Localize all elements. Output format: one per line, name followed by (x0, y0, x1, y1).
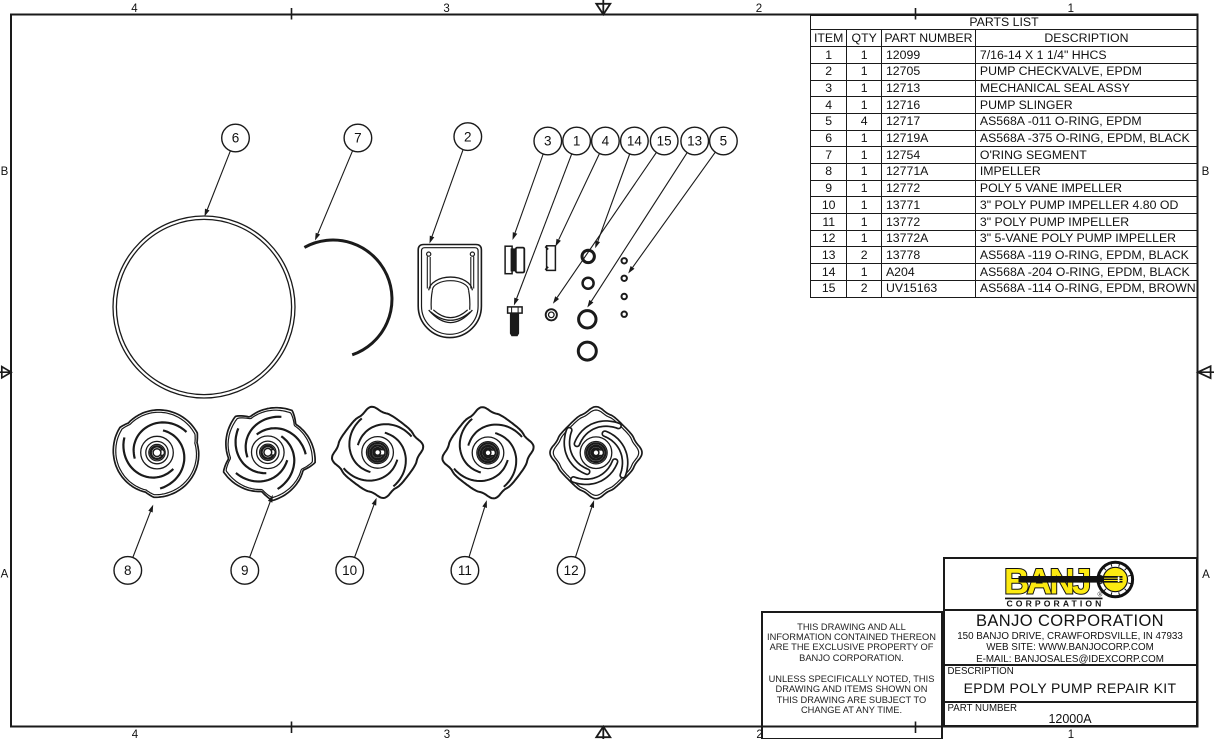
svg-text:2: 2 (464, 129, 472, 144)
svg-text:2: 2 (756, 3, 762, 15)
svg-text:3: 3 (443, 3, 449, 15)
svg-text:4: 4 (132, 729, 139, 739)
svg-text:A: A (1, 569, 9, 581)
svg-text:11: 11 (458, 563, 472, 578)
svg-text:B: B (1202, 166, 1210, 178)
svg-text:B: B (1, 166, 9, 178)
svg-text:3: 3 (544, 134, 552, 149)
svg-text:4: 4 (131, 3, 138, 15)
svg-text:A: A (1202, 569, 1210, 581)
svg-text:10: 10 (342, 563, 357, 578)
svg-text:13: 13 (687, 134, 702, 149)
svg-text:8: 8 (124, 563, 132, 578)
svg-text:4: 4 (602, 134, 610, 149)
svg-text:1: 1 (1068, 3, 1074, 15)
svg-text:12: 12 (564, 563, 579, 578)
svg-text:14: 14 (627, 134, 643, 149)
svg-text:15: 15 (657, 134, 672, 149)
svg-text:1: 1 (573, 134, 581, 149)
svg-text:3: 3 (444, 729, 450, 739)
svg-text:6: 6 (232, 131, 240, 146)
svg-text:5: 5 (720, 134, 728, 149)
svg-text:1: 1 (1068, 729, 1074, 739)
svg-text:7: 7 (354, 131, 362, 146)
svg-text:9: 9 (241, 563, 249, 578)
